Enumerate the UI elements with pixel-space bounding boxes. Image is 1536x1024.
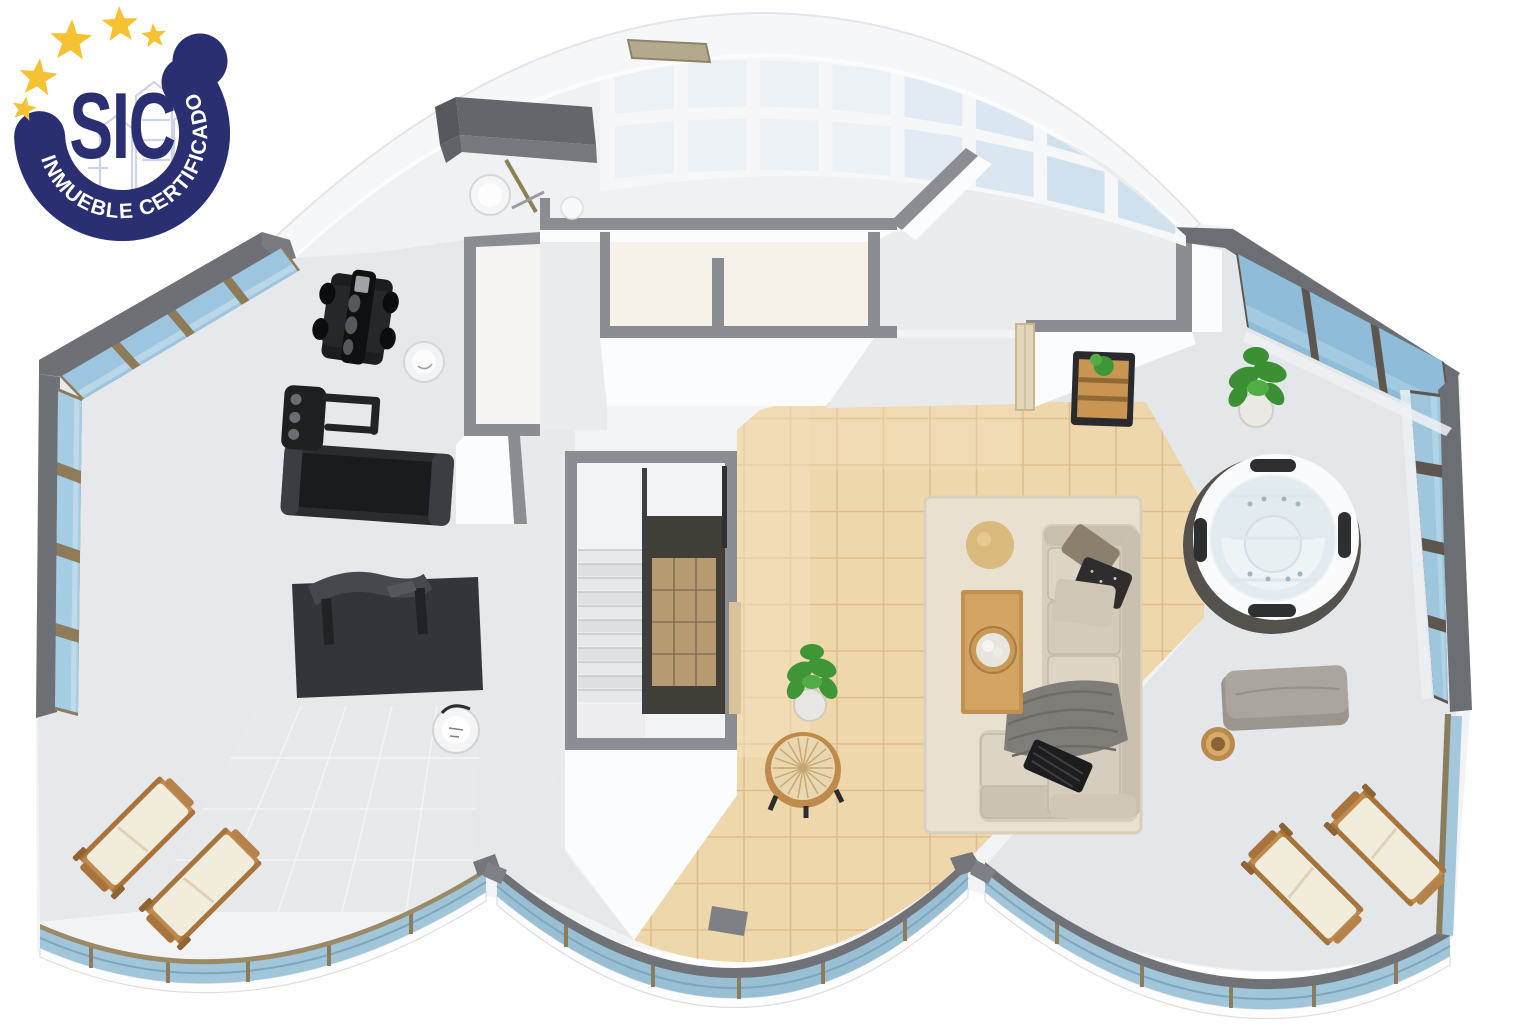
svg-text:SIC: SIC	[69, 75, 175, 179]
